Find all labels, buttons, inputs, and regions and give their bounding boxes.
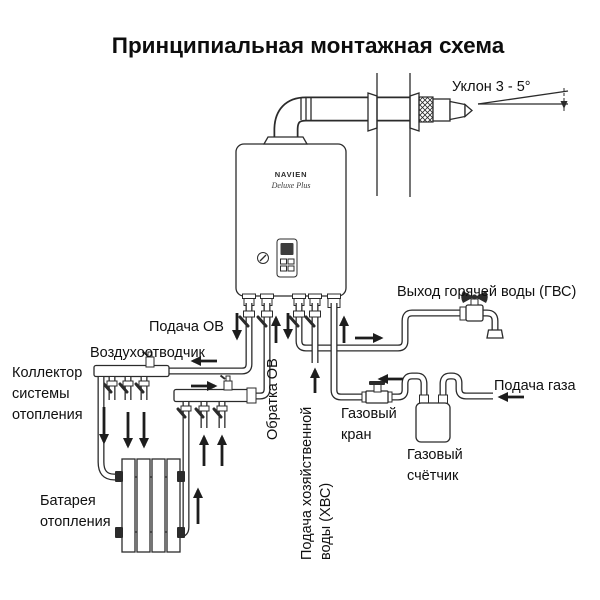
gas-meter	[416, 395, 450, 442]
air-vent-valve-2	[221, 376, 233, 391]
air-vent-label: Воздухоотводчик	[90, 345, 206, 361]
heating-return-label: Обратка ОВ	[265, 358, 281, 440]
diagram-svg: NAVIEN Deluxe Plus	[0, 0, 600, 600]
radiator	[115, 459, 185, 552]
flue-terminal	[419, 97, 472, 122]
svg-text:Коллектор: Коллектор	[12, 365, 82, 381]
heating-supply-label: Подача ОВ	[149, 319, 224, 335]
boiler: NAVIEN Deluxe Plus	[236, 137, 346, 308]
schematic-page: NAVIEN Deluxe Plus	[0, 0, 600, 600]
svg-text:воды (ХВС): воды (ХВС)	[318, 483, 334, 560]
gas-meter-label: Газовый счётчик	[407, 447, 463, 484]
slope-label: Уклон 3 - 5°	[452, 79, 531, 95]
boiler-model-label: Deluxe Plus	[271, 181, 311, 190]
gas-cock	[362, 381, 392, 403]
cold-water-label: Подача хозяйственной воды (ХВС)	[299, 407, 334, 560]
svg-text:Газовый: Газовый	[341, 406, 397, 422]
hot-water-pipe	[299, 303, 463, 348]
page-title: Принципиальная монтажная схема	[112, 33, 505, 58]
svg-text:системы: системы	[12, 386, 70, 402]
collector-label: Коллектор системы отопления	[12, 365, 83, 423]
svg-text:счётчик: счётчик	[407, 468, 459, 484]
svg-text:кран: кран	[341, 427, 371, 443]
svg-text:отопления: отопления	[12, 407, 83, 423]
gas-supply-label: Подача газа	[494, 378, 577, 394]
svg-text:Подача хозяйственной: Подача хозяйственной	[299, 407, 315, 560]
svg-text:отопления: отопления	[40, 514, 111, 530]
wall	[368, 73, 419, 197]
boiler-knob	[258, 253, 269, 264]
radiator-label: Батарея отопления	[40, 493, 111, 530]
return-collector	[174, 376, 256, 535]
boiler-brand-label: NAVIEN	[275, 170, 308, 179]
svg-text:Батарея: Батарея	[40, 493, 96, 509]
boiler-control-panel	[277, 239, 297, 277]
svg-text:Газовый: Газовый	[407, 447, 463, 463]
hot-water-out-label: Выход горячей воды (ГВС)	[397, 284, 576, 300]
gas-cock-label: Газовый кран	[341, 406, 397, 443]
